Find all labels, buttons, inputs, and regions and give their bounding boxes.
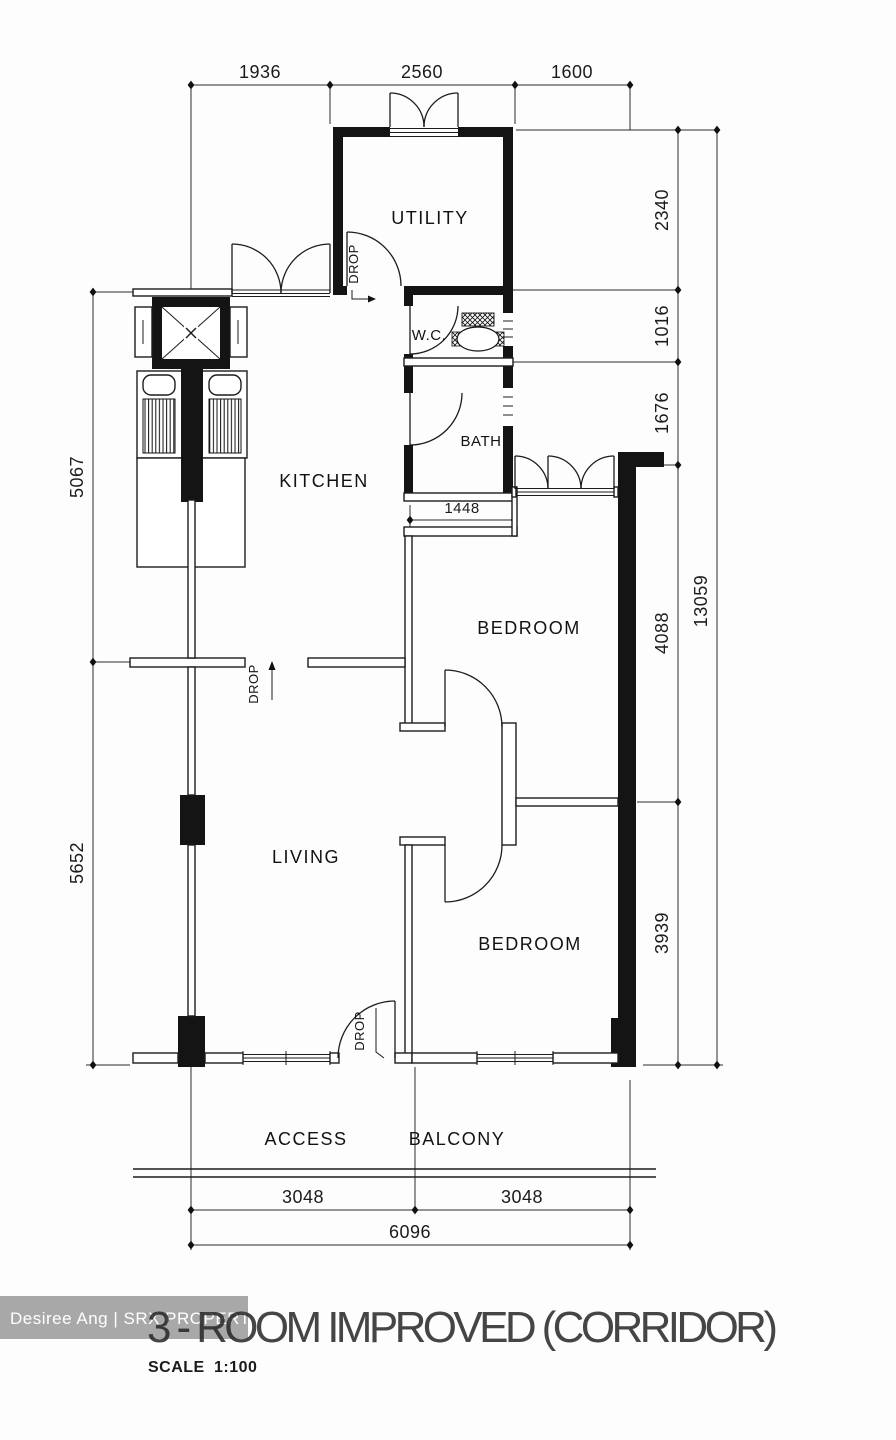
toilet-fixture-icon [452, 313, 504, 351]
bedroom1-door [445, 670, 502, 727]
doors [232, 93, 502, 1058]
drop-label-balcony: DROP [352, 1011, 367, 1051]
dim-bottom-3048-left: 3048 [282, 1187, 324, 1207]
drop-label-living: DROP [246, 664, 261, 704]
dim-bottom-3048-right: 3048 [501, 1187, 543, 1207]
floor-plan-drawing: 1936 2560 1600 2340 1016 1676 4088 3939 … [0, 0, 896, 1440]
dim-bottom-total-6096: 6096 [389, 1222, 431, 1242]
dim-top-2560: 2560 [401, 62, 443, 82]
access-balcony-edge [133, 1169, 656, 1177]
title-block: Desiree Ang | SRX PROPERTY 3 - ROOM IMPR… [0, 1296, 780, 1376]
scale-label: SCALE [148, 1359, 205, 1376]
dim-top-1936: 1936 [239, 62, 281, 82]
floor-plan-page: 1936 2560 1600 2340 1016 1676 4088 3939 … [0, 0, 896, 1440]
room-label-utility: UTILITY [391, 208, 469, 228]
dim-right-total-13059: 13059 [691, 575, 711, 628]
room-label-wc: W.C. [412, 327, 447, 344]
plan-title: 3 - ROOM IMPROVED (CORRIDOR) [147, 1303, 780, 1352]
room-labels: UTILITY W.C. BATH KITCHEN BEDROOM LIVING… [264, 208, 581, 1149]
dim-left-5067: 5067 [67, 456, 87, 498]
dim-right-2340: 2340 [652, 189, 672, 231]
bath-door [410, 393, 462, 445]
drop-annotations: DROP DROP DROP [246, 244, 384, 1058]
room-label-access: ACCESS [264, 1129, 347, 1149]
bedroom1-casement-window [515, 456, 614, 496]
utility-entry-double-door [390, 93, 458, 137]
dim-left-5652: 5652 [67, 842, 87, 884]
kitchen-entry-double-door [232, 244, 330, 297]
windows [243, 456, 614, 1065]
drop-label-utility: DROP [346, 244, 361, 284]
room-label-bedroom2: BEDROOM [478, 934, 582, 954]
living-window [243, 1051, 330, 1065]
dim-right-3939: 3939 [652, 912, 672, 954]
dim-right-1016: 1016 [652, 305, 672, 347]
dim-top-1600: 1600 [551, 62, 593, 82]
dim-right-1676: 1676 [652, 392, 672, 434]
room-label-bedroom1: BEDROOM [477, 618, 581, 638]
room-label-bath: BATH [461, 433, 502, 450]
bedroom2-door [445, 845, 502, 902]
room-label-living: LIVING [272, 847, 340, 867]
room-label-kitchen: KITCHEN [279, 471, 369, 491]
dim-interior-1448: 1448 [444, 500, 479, 517]
scale-value: 1:100 [214, 1359, 257, 1376]
structural-walls [178, 127, 664, 1067]
dim-right-4088: 4088 [652, 612, 672, 654]
room-label-balcony: BALCONY [409, 1129, 506, 1149]
bedroom2-window [477, 1051, 553, 1065]
